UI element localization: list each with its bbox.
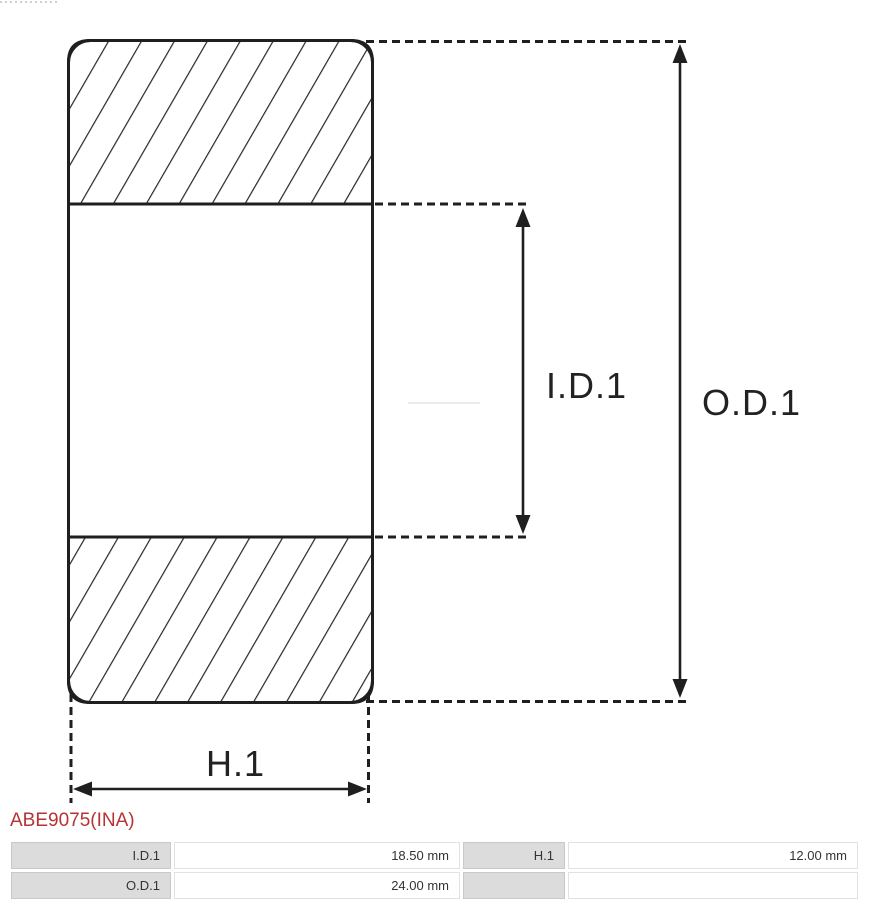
id1-dimension-arrow	[516, 208, 531, 534]
h1-dimension-label: H.1	[206, 743, 265, 784]
spec-value-od1: 24.00 mm	[174, 872, 460, 899]
spec-value-h1: 12.00 mm	[568, 842, 858, 869]
watermark-artifact	[408, 402, 480, 404]
page: I.D.1 O.D.1 H.1 ABE9075(INA) I.D.1 18.50…	[0, 0, 871, 913]
spec-label-empty	[463, 872, 565, 899]
od1-dimension-label: O.D.1	[702, 382, 801, 423]
bearing-bottom-ring-hatch	[69, 537, 373, 703]
spec-value-empty	[568, 872, 858, 899]
spec-table-row: I.D.1 18.50 mm H.1 12.00 mm	[11, 842, 858, 869]
spec-value-id1: 18.50 mm	[174, 842, 460, 869]
spec-table: I.D.1 18.50 mm H.1 12.00 mm O.D.1 24.00 …	[8, 839, 861, 902]
bearing-cross-section-diagram: I.D.1 O.D.1 H.1	[0, 0, 871, 810]
spec-label-od1: O.D.1	[11, 872, 171, 899]
part-number-link[interactable]: ABE9075(INA)	[10, 810, 135, 832]
od1-dimension-arrow	[673, 44, 688, 698]
spec-label-h1: H.1	[463, 842, 565, 869]
spec-table-row: O.D.1 24.00 mm	[11, 872, 858, 899]
id1-dimension-label: I.D.1	[546, 365, 627, 406]
spec-label-id1: I.D.1	[11, 842, 171, 869]
bearing-top-ring-hatch	[69, 41, 373, 205]
